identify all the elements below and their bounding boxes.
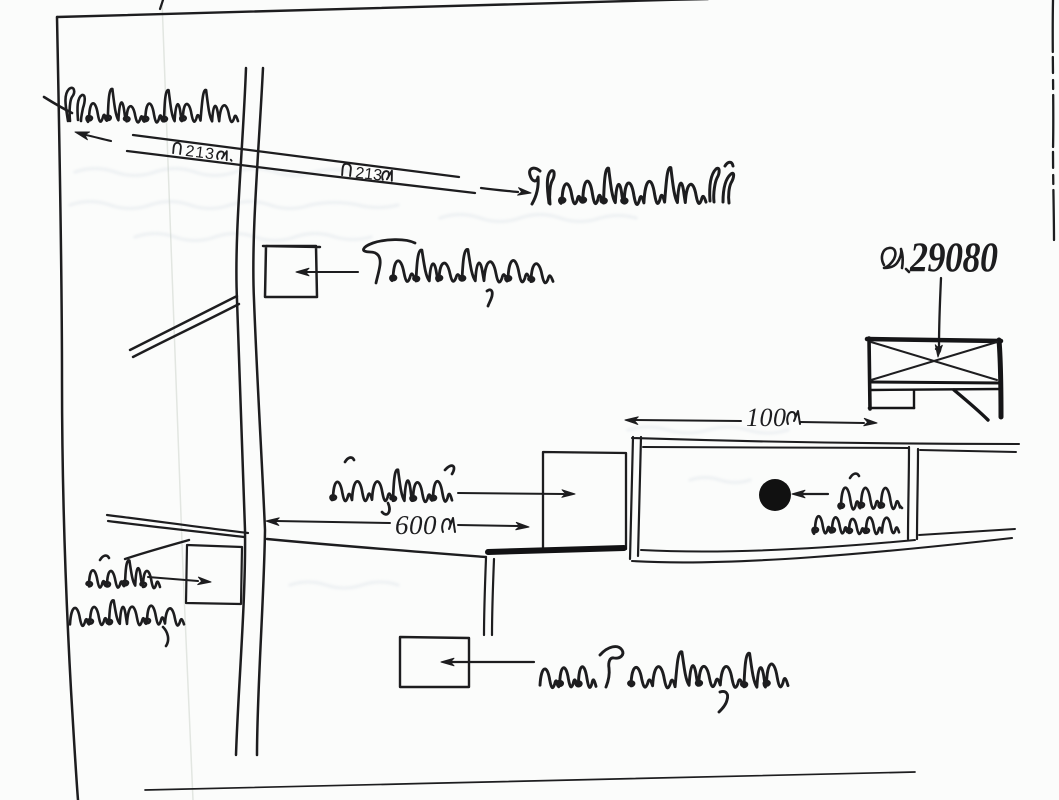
- svg-text:213: 213: [184, 143, 216, 164]
- svg-text:600: 600: [395, 510, 437, 540]
- svg-text:100: 100: [746, 403, 787, 432]
- svg-text:29080: 29080: [909, 234, 997, 281]
- svg-text:213: 213: [354, 165, 383, 185]
